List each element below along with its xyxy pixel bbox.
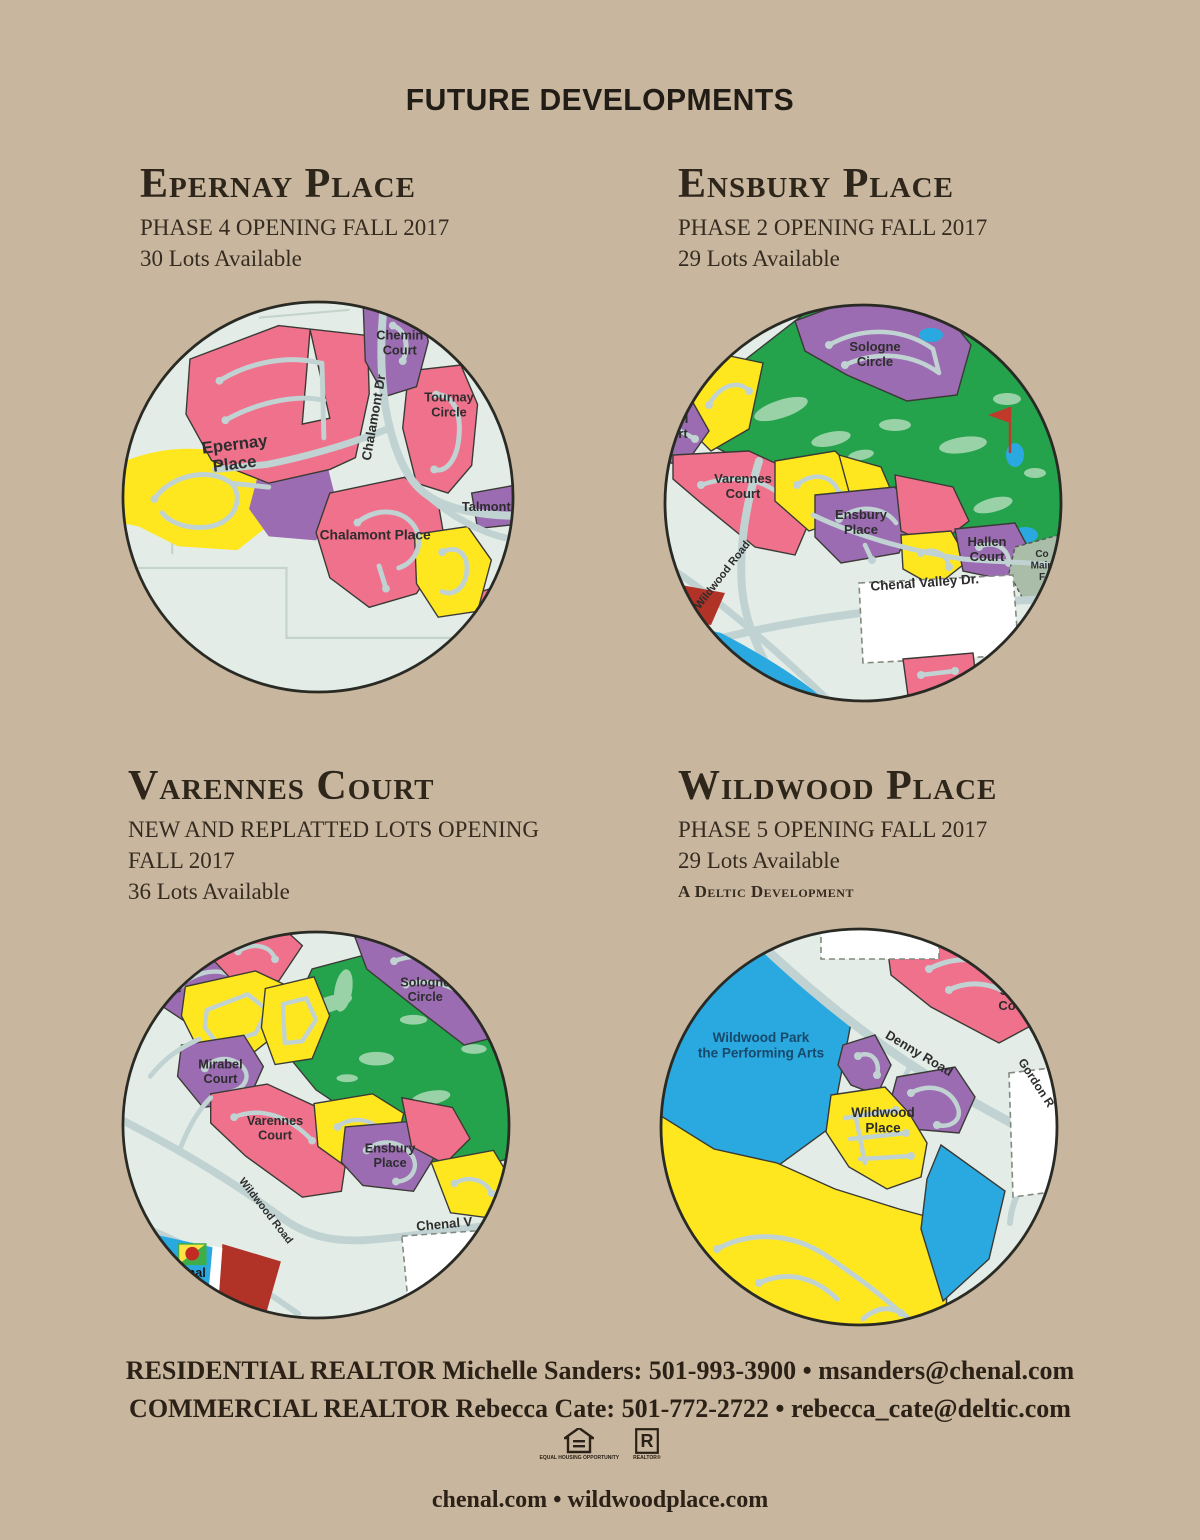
map-label: Court bbox=[383, 342, 418, 357]
section-varennes: Varennes Court NEW AND REPLATTED LOTS OP… bbox=[128, 765, 588, 907]
map-label: ntary bbox=[174, 1281, 205, 1295]
footer-logos: EQUAL HOUSING OPPORTUNITY R REALTOR® bbox=[0, 1428, 1200, 1461]
map-label: Varennes bbox=[247, 1114, 303, 1128]
deltic-development-note: A Deltic Development bbox=[678, 882, 1148, 902]
wildwood-map-svg: Wildwood Parkthe Performing ArtsDenny Ro… bbox=[659, 927, 1059, 1327]
map-label: Circle bbox=[857, 354, 893, 369]
websites-line: chenal.com • wildwoodplace.com bbox=[0, 1487, 1200, 1514]
realtor-caption: REALTOR® bbox=[633, 1455, 660, 1461]
map-label: the Performing Arts bbox=[698, 1046, 824, 1061]
realtor-icon: R bbox=[635, 1428, 659, 1454]
development-phase: NEW AND REPLATTED LOTS OPENING FALL 2017 bbox=[128, 815, 588, 877]
map-label: Place bbox=[844, 522, 878, 537]
development-lots: 36 Lots Available bbox=[128, 877, 588, 908]
development-title: Epernay Place bbox=[140, 163, 610, 205]
development-phase: PHASE 5 OPENING FALL 2017 bbox=[678, 815, 1148, 846]
map-label: Wildwood Park bbox=[713, 1030, 810, 1045]
ensbury-map-svg: SologneCirclebelurtVarennesCourtEnsburyP… bbox=[663, 303, 1063, 703]
equal-housing-logo: EQUAL HOUSING OPPORTUNITY bbox=[539, 1428, 619, 1461]
development-lots: 29 Lots Available bbox=[678, 846, 1148, 877]
map-label: Court bbox=[726, 486, 761, 501]
development-lots: 29 Lots Available bbox=[678, 244, 1148, 275]
development-phase: PHASE 4 OPENING FALL 2017 bbox=[140, 213, 610, 244]
map-ensbury-place: SologneCirclebelurtVarennesCourtEnsburyP… bbox=[663, 303, 1063, 703]
map-label: Court bbox=[258, 1129, 293, 1143]
map-label: Ensbury bbox=[365, 1141, 416, 1155]
map-wildwood-place: Wildwood Parkthe Performing ArtsDenny Ro… bbox=[659, 927, 1059, 1327]
map-label: Talmont P bbox=[462, 499, 515, 514]
varennes-map-svg: ceSologneCircleMirabelCourtVarennesCourt… bbox=[121, 930, 511, 1320]
commercial-realtor-line: COMMERCIAL REALTOR Rebecca Cate: 501-772… bbox=[0, 1390, 1200, 1428]
equal-housing-caption: EQUAL HOUSING OPPORTUNITY bbox=[539, 1455, 619, 1461]
epernay-map-svg: CheminCourtChalamont DrTournayCircleEper… bbox=[121, 300, 515, 694]
map-label: Place bbox=[374, 1156, 407, 1170]
contact-block: RESIDENTIAL REALTOR Michelle Sanders: 50… bbox=[0, 1352, 1200, 1427]
map-epernay-place: CheminCourtChalamont DrTournayCircleEper… bbox=[121, 300, 515, 694]
map-label: Sologne bbox=[849, 339, 900, 354]
map-varennes-court: ceSologneCircleMirabelCourtVarennesCourt… bbox=[121, 930, 511, 1320]
map-label: Place bbox=[865, 1121, 901, 1136]
map-label: Co bbox=[1035, 549, 1048, 560]
chenal-elementary-logo bbox=[179, 1244, 206, 1264]
section-epernay: Epernay Place PHASE 4 OPENING FALL 2017 … bbox=[140, 163, 610, 275]
development-title: Wildwood Place bbox=[678, 765, 1148, 807]
map-label: Wildwood bbox=[851, 1105, 915, 1120]
development-title: Varennes Court bbox=[128, 765, 588, 807]
development-phase: PHASE 2 OPENING FALL 2017 bbox=[678, 213, 1148, 244]
map-label: Circle bbox=[408, 990, 443, 1004]
flyer-page: FUTURE DEVELOPMENTS Epernay Place PHASE … bbox=[0, 0, 1200, 1540]
page-title: FUTURE DEVELOPMENTS bbox=[18, 82, 1182, 118]
section-wildwood: Wildwood Place PHASE 5 OPENING FALL 2017… bbox=[678, 765, 1148, 902]
map-label: Court bbox=[204, 1072, 239, 1086]
map-label: Court bbox=[970, 549, 1005, 564]
equal-housing-icon bbox=[564, 1428, 594, 1454]
map-label: Chalamont Place bbox=[320, 527, 431, 542]
map-label: Mirabel bbox=[198, 1057, 242, 1071]
map-label: henal bbox=[173, 1266, 206, 1280]
section-ensbury: Ensbury Place PHASE 2 OPENING FALL 2017 … bbox=[678, 163, 1148, 275]
realtor-logo: R REALTOR® bbox=[633, 1428, 660, 1461]
map-label: Varennes bbox=[714, 471, 772, 486]
map-label: Circle bbox=[431, 404, 467, 419]
map-label: Ensbury bbox=[835, 507, 888, 522]
residential-realtor-line: RESIDENTIAL REALTOR Michelle Sanders: 50… bbox=[0, 1352, 1200, 1390]
realtor-r-glyph: R bbox=[640, 1431, 653, 1451]
map-label: Tournay bbox=[424, 389, 474, 404]
development-title: Ensbury Place bbox=[678, 163, 1148, 205]
map-label: Hallen bbox=[967, 534, 1006, 549]
development-lots: 30 Lots Available bbox=[140, 244, 610, 275]
